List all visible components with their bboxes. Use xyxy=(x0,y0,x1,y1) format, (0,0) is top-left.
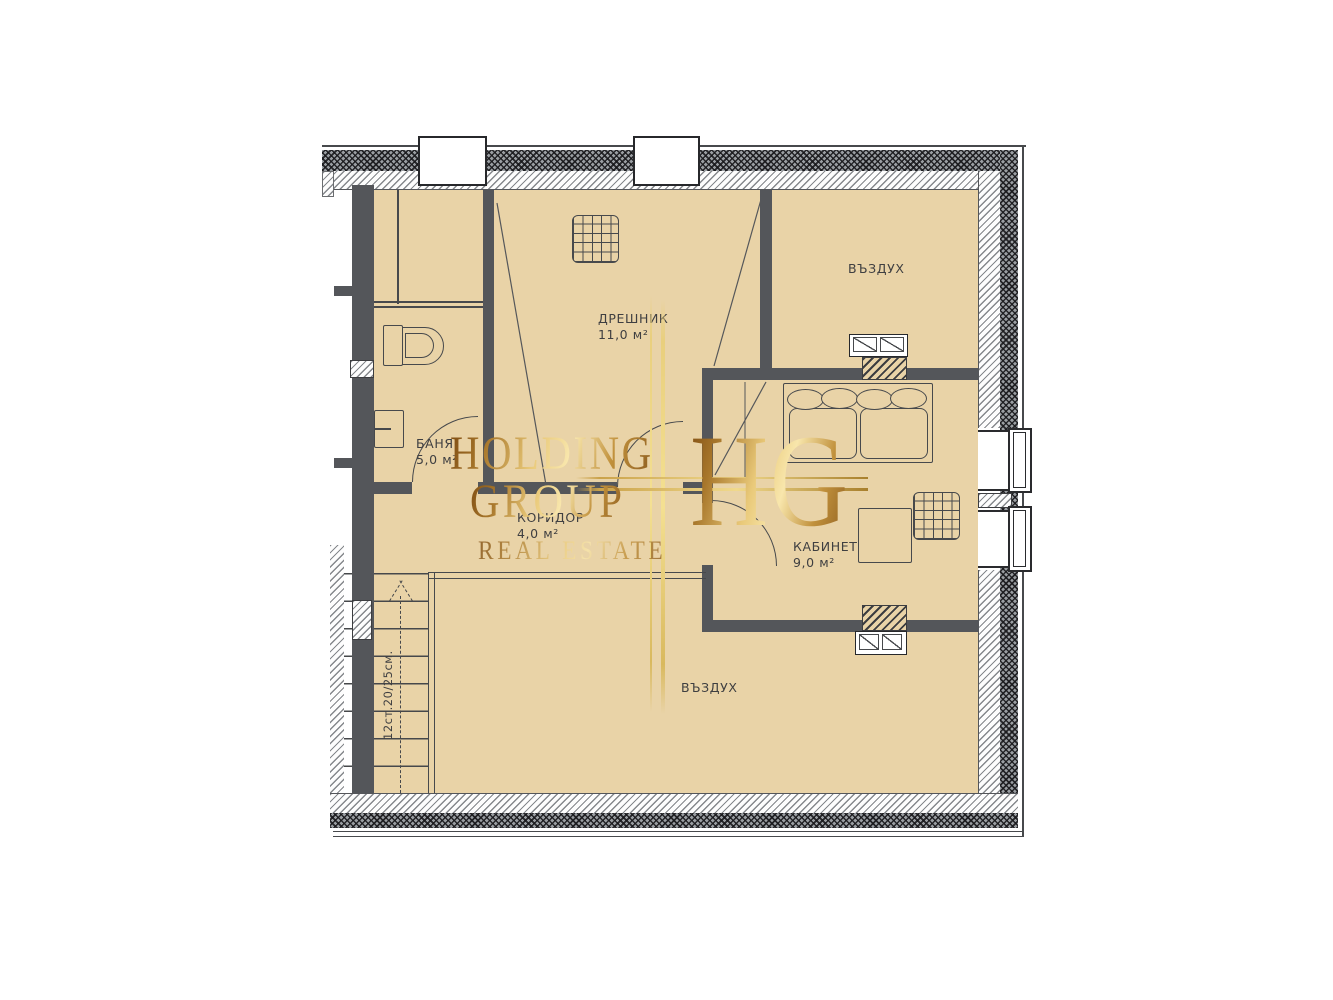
sink xyxy=(374,410,404,448)
pillow xyxy=(890,388,927,409)
room-area: 11,0 м² xyxy=(598,327,668,343)
desk xyxy=(858,508,912,563)
room-name: ДРЕШНИК xyxy=(598,311,668,326)
drawer xyxy=(880,337,904,352)
dormer-left xyxy=(418,136,487,186)
room-name: БАНЯ xyxy=(416,436,454,451)
bathroom-partition-line xyxy=(397,190,399,304)
watermark-hg-monogram: HG xyxy=(690,415,850,547)
floor-plan: 12ст.20/25см. xyxy=(0,0,1333,1000)
bottom-wall-outer-band xyxy=(330,813,1018,828)
outer-line-bottom xyxy=(333,831,1023,837)
window-upper-frame xyxy=(1008,428,1032,493)
left-wall-stub-upper xyxy=(334,286,352,296)
room-area: 9,0 м² xyxy=(793,555,857,571)
left-wall xyxy=(352,185,374,793)
toilet-tank xyxy=(383,325,403,366)
chimney-top-cabinet xyxy=(849,334,908,357)
room-label-vazduh-top: ВЪЗДУХ xyxy=(848,261,905,277)
chair-grid xyxy=(913,492,960,540)
window-lower-frame-inner xyxy=(1013,510,1026,567)
chimney-top-flue xyxy=(862,357,907,380)
left-exterior-ticks xyxy=(344,573,352,793)
left-exterior-hatch-strip xyxy=(330,545,344,793)
window-spacer xyxy=(978,493,1012,508)
watermark-group: GROUP xyxy=(470,478,625,526)
pillow xyxy=(856,389,893,410)
toilet-bowl xyxy=(402,327,444,365)
stairs-right-edge xyxy=(428,572,435,793)
drawer xyxy=(859,634,879,650)
right-wall-upper xyxy=(978,171,1000,428)
room-name: ВЪЗДУХ xyxy=(848,261,905,276)
kabinet-bottom-wall xyxy=(702,620,978,632)
bathroom-shelf-line-1 xyxy=(374,301,483,303)
left-wall-window-upper xyxy=(350,360,374,378)
watermark-vertical-line-1 xyxy=(650,296,652,712)
bathroom-bottom-wall xyxy=(374,482,412,494)
pillow xyxy=(821,388,858,409)
room-label-dreshnik: ДРЕШНИК 11,0 м² xyxy=(598,311,668,343)
watermark-vertical-line-2 xyxy=(661,300,665,714)
drawer xyxy=(882,634,902,650)
bathroom-shelf-line-2 xyxy=(374,306,483,308)
window-upper-frame-inner xyxy=(1013,432,1026,488)
dormer-right xyxy=(633,136,700,186)
watermark-real-estate: REAL ESTATE xyxy=(478,538,666,564)
mattress xyxy=(860,408,928,459)
top-wall-left-cap xyxy=(322,171,334,197)
watermark-holding: HOLDING xyxy=(450,430,654,478)
right-wall-lower xyxy=(978,570,1000,813)
sink-divider-line xyxy=(375,428,391,430)
toilet-bowl-inner xyxy=(405,333,434,358)
window-upper-opening xyxy=(978,430,1010,491)
void-top-left-wall xyxy=(760,190,772,368)
drawer xyxy=(853,337,877,352)
bottom-wall-inner-band xyxy=(330,793,1018,813)
left-wall-stub-lower xyxy=(334,458,352,468)
room-label-vazduh-bottom: ВЪЗДУХ xyxy=(681,680,738,696)
stairs-label: 12ст.20/25см. xyxy=(381,595,395,740)
room-name: ВЪЗДУХ xyxy=(681,680,738,695)
chimney-bottom-flue xyxy=(862,605,907,631)
stairs-direction-line xyxy=(400,596,401,793)
window-lower-opening xyxy=(978,510,1010,568)
window-lower-frame xyxy=(1008,506,1032,572)
skylight-grid xyxy=(572,215,619,263)
chimney-bottom-cabinet xyxy=(855,631,907,655)
left-wall-window-lower xyxy=(352,600,372,640)
kabinet-top-wall xyxy=(702,368,978,380)
